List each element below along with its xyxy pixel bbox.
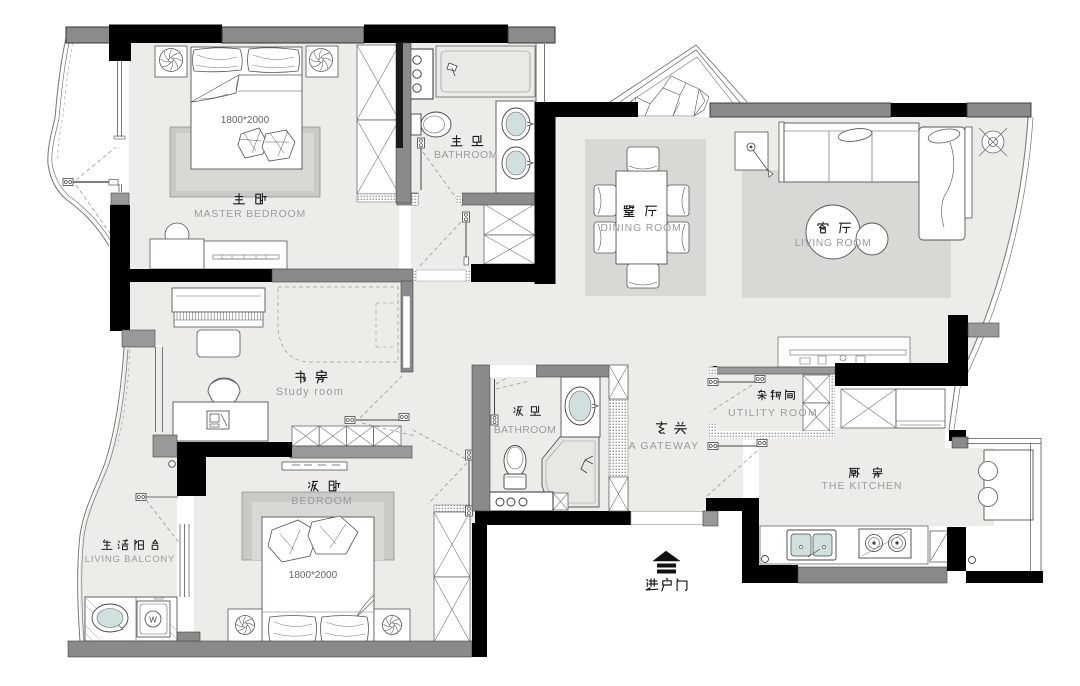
svg-text:LIVING ROOM: LIVING ROOM	[795, 237, 872, 249]
svg-text:UTILITY ROOM: UTILITY ROOM	[728, 407, 818, 419]
svg-text:W: W	[149, 616, 157, 625]
svg-text:BATHROOM: BATHROOM	[494, 424, 556, 436]
svg-text:1800*2000: 1800*2000	[221, 115, 270, 126]
svg-text:Study room: Study room	[276, 386, 344, 398]
svg-text:THE KITCHEN: THE KITCHEN	[821, 480, 902, 492]
svg-text:DINING ROOM: DINING ROOM	[600, 222, 681, 234]
svg-text:BATHROOM: BATHROOM	[434, 149, 498, 161]
svg-text:BEDROOM: BEDROOM	[291, 495, 352, 507]
svg-text:1800*2000: 1800*2000	[289, 570, 338, 581]
svg-text:LIVING BALCONY: LIVING BALCONY	[85, 554, 175, 565]
svg-text:A GATEWAY: A GATEWAY	[629, 440, 700, 452]
svg-text:MASTER BEDROOM: MASTER BEDROOM	[194, 208, 306, 220]
